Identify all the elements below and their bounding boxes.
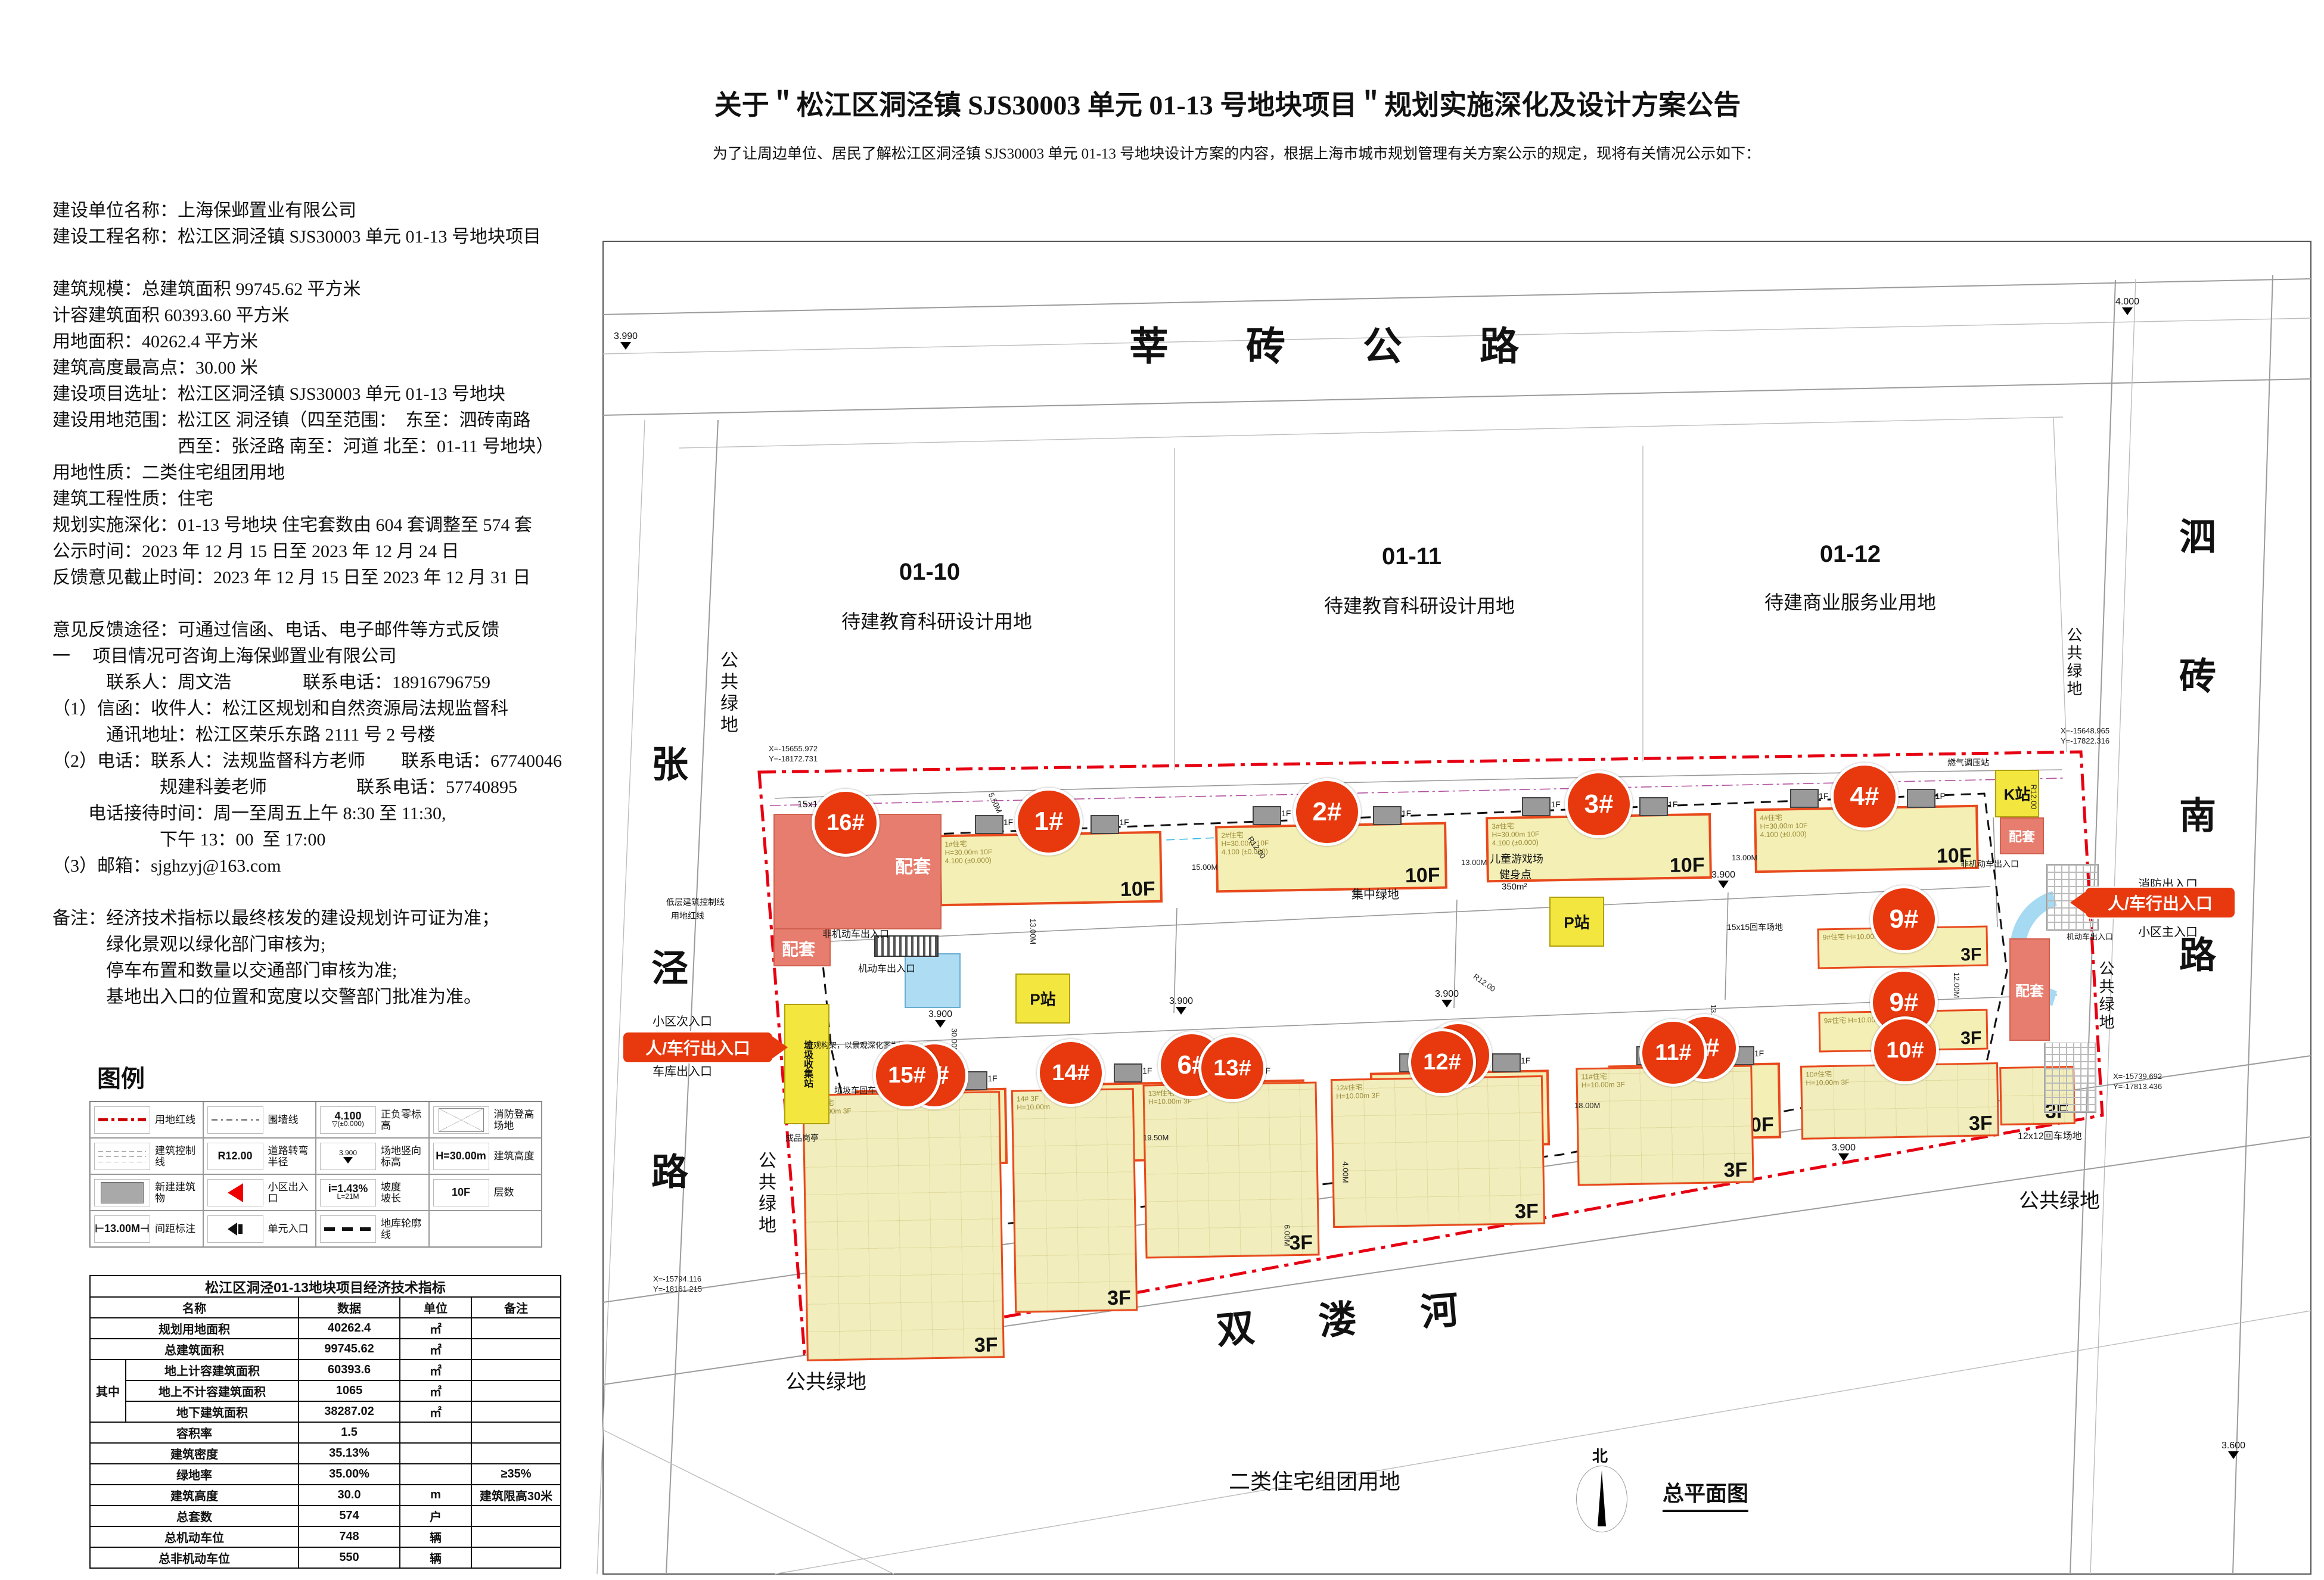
map-label: 健身点: [1499, 866, 1531, 882]
coordinate-label: X=-15648.965Y=-17822.316: [2061, 726, 2109, 746]
map-label: 集中绿地: [1351, 885, 1399, 902]
map-label: 待建教育科研设计用地: [1324, 591, 1515, 618]
unit-entry-box: [1114, 1063, 1142, 1083]
map-label: 350m²: [1502, 882, 1527, 892]
coordinate-label: X=-15739.692Y=-17813.436: [2113, 1071, 2162, 1091]
building-15#: 15#住宅 H=10.00m 3F3F: [802, 1091, 1005, 1361]
elevation-triangle-icon: [1176, 1007, 1186, 1015]
siteplan-lines: [0, 0, 2324, 1580]
map-label: 公共绿地: [714, 651, 740, 736]
elevation-value: 3.900: [1832, 1143, 1856, 1153]
unit-entry-box: [1907, 789, 1935, 808]
building-badge-4#: 4#: [1831, 763, 1899, 831]
elevation-marker: 3.600: [2222, 1441, 2245, 1459]
path-drive: [1725, 892, 1728, 1000]
building-floors-label: 10F: [1405, 864, 1440, 887]
dim-label: 12.00M: [1952, 972, 1961, 998]
elevation-value: 3.900: [928, 1009, 952, 1020]
unit-entry-label: 1F: [1119, 817, 1129, 827]
unit-entry-box: [1373, 806, 1402, 825]
building-floors-label: 3F: [1961, 1028, 1982, 1049]
elevation-marker: 3.900: [1832, 1143, 1856, 1161]
map-label: 非机动车出入口: [822, 926, 889, 940]
elevation-marker: 3.990: [614, 331, 638, 350]
entrance-badge: 人/车行出入口: [2086, 888, 2235, 917]
box-label: P站: [1564, 911, 1589, 933]
map-label: 儿童游戏场: [1490, 851, 1543, 866]
unit-entry-label: 1F: [1003, 817, 1013, 827]
map-label: 小区次入口: [653, 1012, 712, 1029]
path-roadthin: [679, 417, 2063, 448]
unit-entry-label: 1F: [1935, 791, 1945, 801]
building-badge-13#: 13#: [1198, 1034, 1266, 1102]
building-badge-15#: 15#: [873, 1041, 941, 1109]
elevation-triangle-icon: [1838, 1153, 1849, 1161]
dim-label: 13.00M: [1461, 858, 1487, 867]
unit-entry-box: [975, 815, 1003, 834]
map-label: 待建教育科研设计用地: [841, 607, 1032, 634]
unit-entry-label: 1F: [1819, 791, 1828, 801]
map-label: 泗砖南路: [2167, 517, 2220, 1075]
coordinate-label: X=-15655.972Y=-18172.731: [769, 744, 818, 764]
map-label: 公共绿地: [752, 1151, 778, 1237]
building-mini-label: 4#住宅 H=30.00m 10F 4.100 (±0.000): [1760, 813, 1807, 839]
building-badge-11#: 11#: [1639, 1019, 1707, 1087]
box-label: 配套: [2015, 979, 2044, 1000]
map-label: 01-11: [1382, 543, 1441, 570]
building-floors-label: 10F: [1120, 878, 1155, 901]
north-arrow: [1576, 1466, 1627, 1532]
box-b-hatch: [2044, 1043, 2096, 1113]
map-label: 小区主入口: [2138, 922, 2198, 940]
entrance-arrow-icon: [2070, 891, 2087, 915]
building-mini-label: 1#住宅 H=30.00m 10F 4.100 (±0.000): [944, 839, 992, 865]
unit-entry-label: 1F: [987, 1074, 997, 1083]
map-label: 机动车出入口: [858, 960, 915, 975]
building-mini-label: 9#住宅 H=10.00m: [1823, 932, 1881, 942]
building-mini-label: 14# 3F H=10.00m: [1017, 1094, 1050, 1112]
map-label: 二类住宅组团用地: [1229, 1464, 1400, 1495]
building-mini-label: 3#住宅 H=30.00m 10F 4.100 (±0.000): [1492, 822, 1539, 847]
dim-label: 13.00M: [1732, 853, 1757, 862]
building-badge-2#: 2#: [1293, 778, 1361, 846]
dim-label: 6.00M: [1283, 1224, 1292, 1246]
elevation-triangle-icon: [1441, 1000, 1452, 1007]
box-label: 配套: [2009, 826, 2035, 845]
building-floors-label: 3F: [1969, 1112, 1993, 1135]
path-road: [2233, 275, 2273, 1574]
map-label: 公共绿地: [2063, 627, 2085, 698]
entrance-badge: 人/车行出入口: [623, 1032, 772, 1062]
north-label: 北: [1592, 1444, 1608, 1466]
unit-entry-label: 1F: [1521, 1056, 1530, 1065]
elevation-value: 3.600: [2222, 1441, 2245, 1451]
unit-entry-box: [1253, 806, 1281, 825]
dim-label: 13.00M: [1029, 919, 1037, 944]
unit-entry-label: 1F: [1402, 808, 1411, 818]
box-配套: 配套: [2000, 817, 2044, 854]
box-垃圾收集站: 垃圾收集站: [784, 1004, 829, 1124]
elevation-marker: 3.900: [1711, 870, 1735, 888]
siteplan-title: 总平面图: [1663, 1476, 1748, 1512]
unit-entry-box: [1090, 815, 1119, 834]
dim-label: R12.00: [2029, 785, 2038, 810]
map-label: 公共绿地: [2095, 960, 2117, 1032]
building-floors-label: 3F: [1961, 945, 1982, 965]
building-14#: 14# 3F H=10.00m3F: [1011, 1088, 1138, 1313]
box-label: P站: [1030, 988, 1055, 1010]
path-roadthin: [2053, 418, 2067, 752]
dim-label: 19.50M: [1143, 1133, 1169, 1142]
path-roadthin: [775, 1311, 2311, 1574]
siteplan: 北 总平面图 1#住宅 H=30.00m 10F 4.100 (±0.000)1…: [0, 0, 2324, 1580]
north-needle: [1598, 1470, 1606, 1526]
building-floors-label: 3F: [1515, 1200, 1539, 1223]
elevation-value: 3.900: [1711, 870, 1735, 881]
building-12#: 12#住宅 H=10.00m 3F3F: [1331, 1075, 1545, 1228]
building-floors-label: 3F: [1107, 1287, 1131, 1310]
building-badge-16#: 16#: [812, 789, 880, 857]
map-label: 公共绿地: [2019, 1184, 2100, 1214]
building-floors-label: 3F: [974, 1334, 998, 1357]
elevation-triangle-icon: [2228, 1451, 2239, 1459]
elevation-marker: 3.900: [1169, 996, 1193, 1015]
building-floors-label: 3F: [1723, 1159, 1747, 1181]
building-badge-10#: 10#: [1871, 1016, 1939, 1084]
dim-label: 18.00M: [1574, 1101, 1600, 1110]
map-label: 15x15回车场地: [1727, 921, 1783, 933]
box-配套: 配套: [2009, 938, 2050, 1041]
unit-entry-label: 1F: [1281, 808, 1291, 818]
map-label: 非机动车出入口: [1961, 858, 2019, 870]
map-label: 机动车出入口: [2067, 931, 2113, 942]
map-label: 车库出入口: [653, 1062, 712, 1079]
building-badge-9#: 9#: [1870, 885, 1938, 953]
elevation-triangle-icon: [620, 342, 631, 350]
map-label: 成品岗亭: [785, 1132, 819, 1144]
map-label: 待建商业服务业用地: [1764, 587, 1936, 615]
elevation-marker: 3.900: [928, 1009, 952, 1028]
building-mini-label: 12#住宅 H=10.00m 3F: [1336, 1083, 1380, 1100]
elevation-triangle-icon: [2122, 307, 2133, 315]
map-label: 燃气调压站: [1947, 757, 1989, 769]
building-badge-14#: 14#: [1037, 1039, 1105, 1107]
path-roadthin: [603, 1430, 894, 1574]
unit-entry-label: 1F: [1551, 800, 1560, 809]
dim-label: 4.00M: [1341, 1161, 1350, 1183]
building-badge-3#: 3#: [1565, 770, 1633, 838]
elevation-marker: 4.000: [2115, 297, 2139, 315]
dim-label: 15.00M: [1192, 863, 1217, 872]
box-P站: P站: [1015, 973, 1070, 1024]
unit-entry-box: [1639, 797, 1668, 816]
path-road: [603, 379, 2311, 415]
unit-entry-label: 1F: [1754, 1049, 1764, 1058]
box-P站: P站: [1549, 897, 1604, 947]
elevation-value: 3.990: [614, 331, 638, 342]
unit-entry-box: [1522, 797, 1551, 816]
box-label: K站: [2004, 783, 2031, 805]
building-badge-12#: 12#: [1408, 1028, 1476, 1096]
elevation-triangle-icon: [1718, 881, 1729, 888]
building-mini-label: 10#住宅 H=10.00m 3F: [1806, 1069, 1850, 1087]
building-floors-label: 10F: [1670, 854, 1705, 877]
map-label: 用地红线: [671, 910, 704, 922]
path-road: [603, 279, 2311, 315]
map-label: 12x12回车场地: [2018, 1128, 2082, 1142]
unit-entry-label: 1F: [1668, 800, 1677, 809]
unit-entry-label: 1F: [1142, 1066, 1152, 1075]
elevation-value: 4.000: [2115, 297, 2139, 307]
map-label: 01-12: [1820, 541, 1881, 568]
elevation-marker: 3.900: [1435, 989, 1459, 1007]
map-label: 公共绿地: [785, 1366, 866, 1395]
building-mini-label: 11#住宅 H=10.00m 3F: [1581, 1072, 1625, 1089]
building-badge-1#: 1#: [1015, 788, 1083, 856]
elevation-triangle-icon: [935, 1020, 946, 1028]
unit-entry-box: [1492, 1053, 1521, 1072]
map-label: 低层建筑控制线: [666, 896, 725, 908]
elevation-value: 3.900: [1169, 996, 1193, 1007]
unit-entry-box: [1790, 789, 1819, 808]
map-label: 配套: [782, 937, 815, 960]
entrance-arrow-icon: [771, 1035, 788, 1059]
path-roadthin: [597, 420, 645, 1574]
map-label: 01-10: [899, 559, 960, 586]
building-13#: 13#住宅 H=10.00m 3F3F: [1142, 1081, 1319, 1258]
building-floors-label: 3F: [1289, 1231, 1313, 1254]
elevation-value: 3.900: [1435, 989, 1459, 1000]
map-label: 配套: [895, 852, 931, 878]
map-label: 莘砖公路: [1129, 315, 1596, 372]
